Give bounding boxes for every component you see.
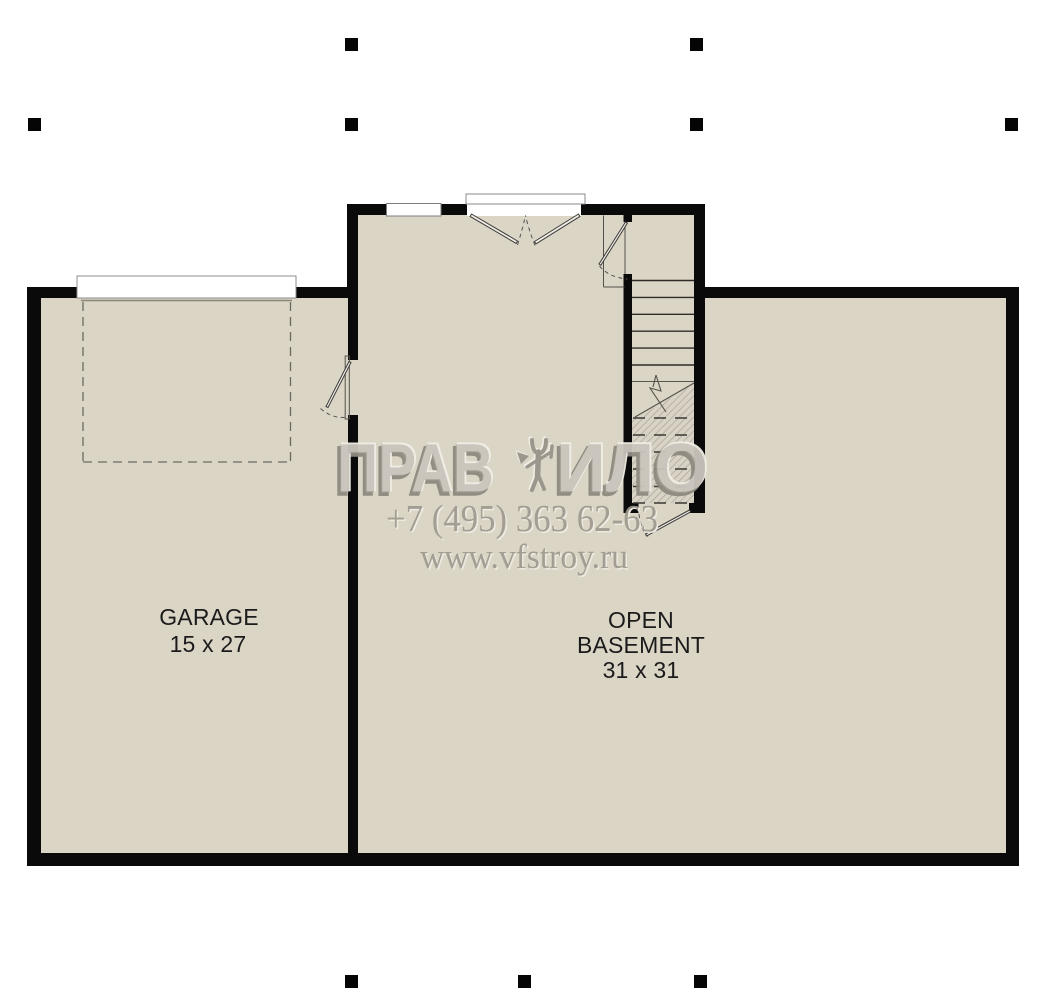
svg-text:15 x 27: 15 x 27 bbox=[170, 631, 247, 657]
svg-text:ИЛО: ИЛО bbox=[556, 430, 708, 507]
svg-text:GARAGE: GARAGE bbox=[159, 604, 259, 630]
svg-text:OPEN: OPEN bbox=[608, 607, 674, 633]
svg-text:www.vfstroy.ru: www.vfstroy.ru bbox=[420, 537, 628, 576]
svg-text:BASEMENT: BASEMENT bbox=[577, 632, 705, 658]
svg-text:+7 (495) 363 62-63: +7 (495) 363 62-63 bbox=[386, 498, 658, 540]
svg-text:31 x 31: 31 x 31 bbox=[603, 657, 680, 683]
svg-text:ПРАВ: ПРАВ bbox=[337, 430, 494, 507]
